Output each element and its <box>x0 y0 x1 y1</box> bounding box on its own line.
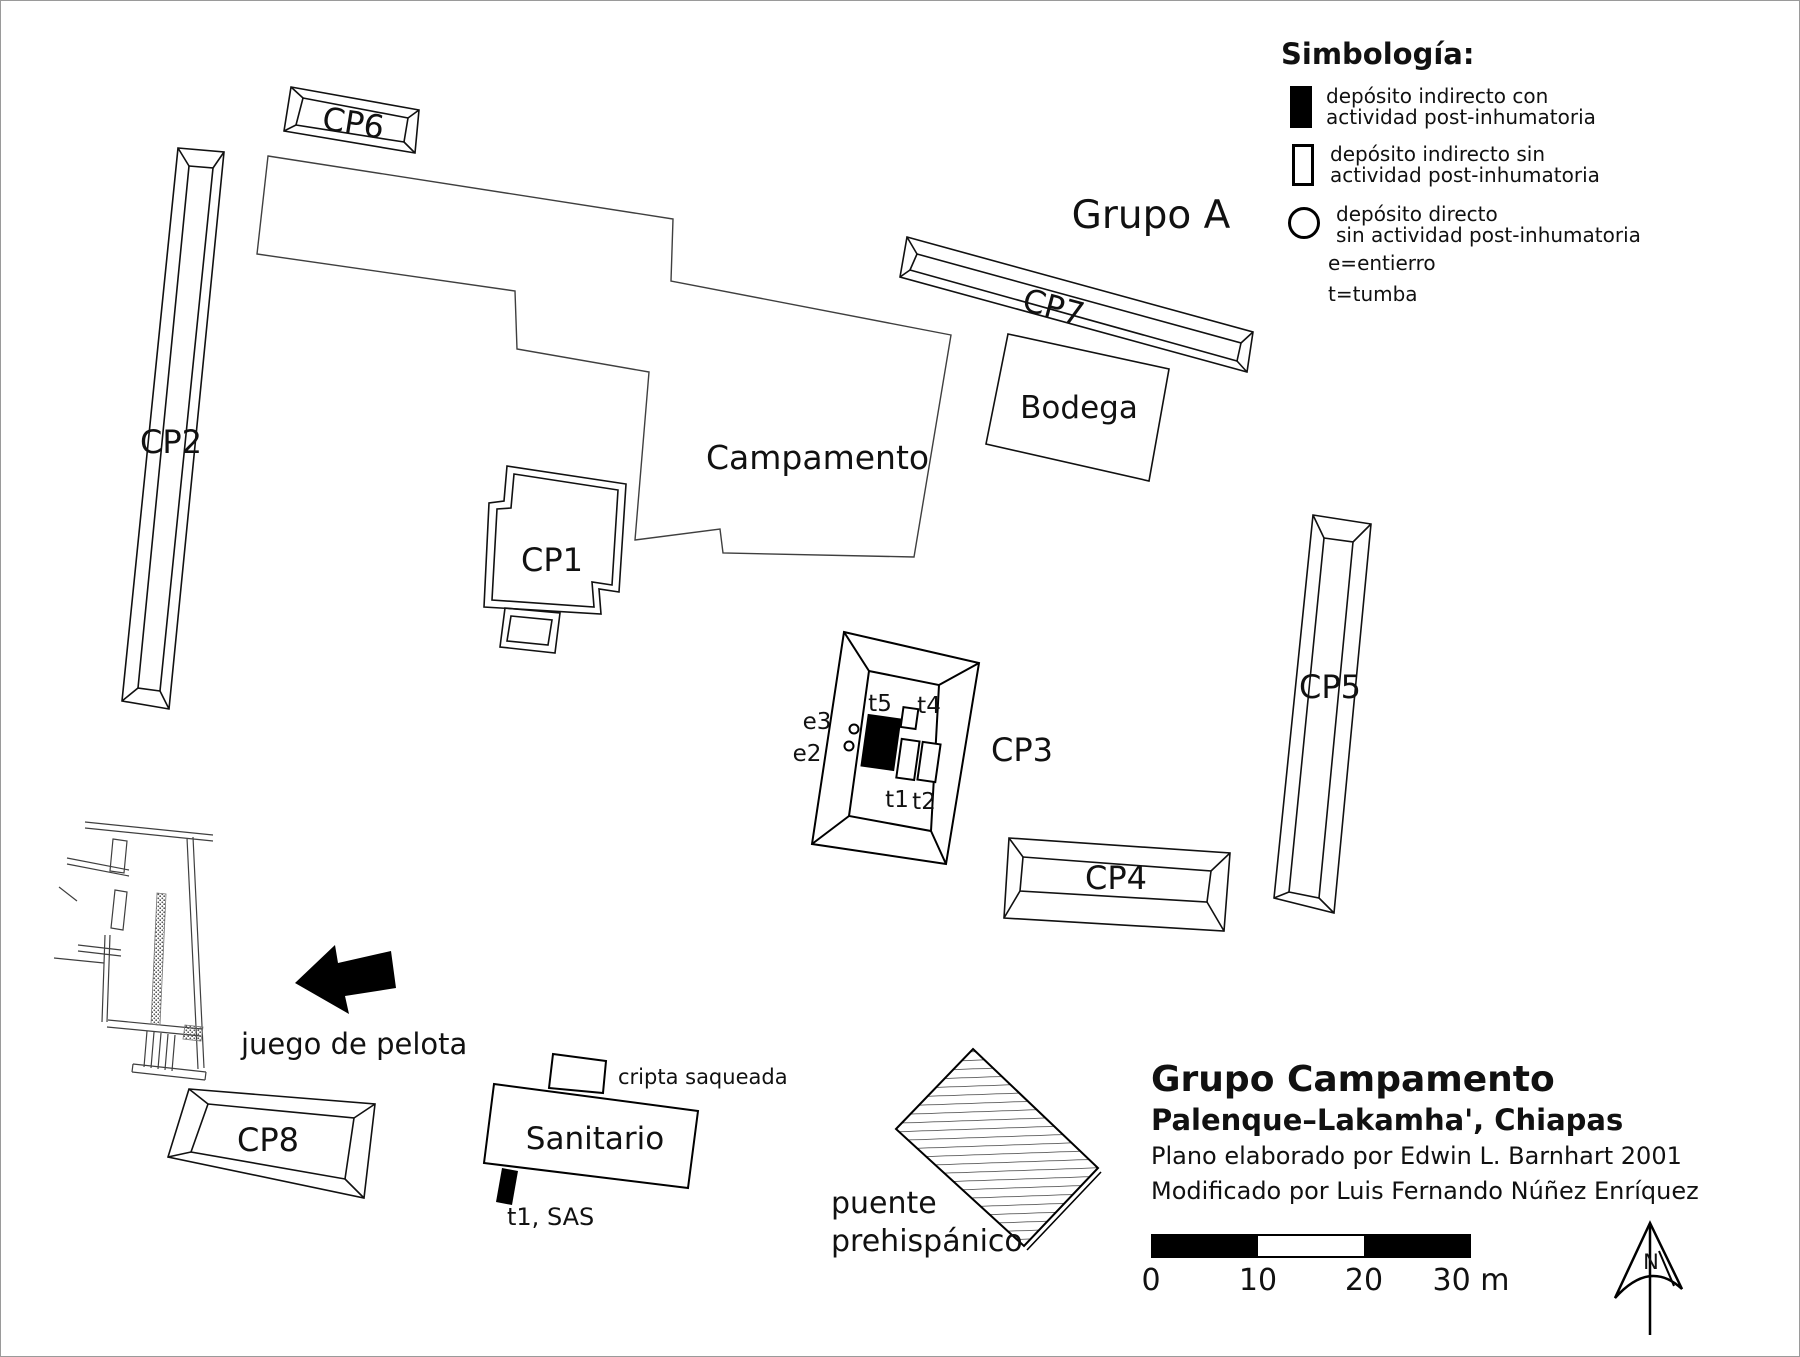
burial-e2-marker <box>845 742 854 751</box>
cp7-label: CP7 <box>1019 281 1089 334</box>
map-credit-2: Modificado por Luis Fernando Núñez Enríq… <box>1151 1177 1699 1205</box>
legend-entierro: e=entierro <box>1328 251 1436 275</box>
bodega-label: Bodega <box>1020 390 1138 426</box>
filled-rect-icon <box>1290 86 1312 128</box>
cp4-label: CP4 <box>1085 859 1147 897</box>
legend-tumba: t=tumba <box>1328 282 1418 306</box>
scale-bar <box>1151 1234 1471 1258</box>
scale-bar-segment <box>1153 1236 1258 1256</box>
legend-item-line: actividad post-inhumatoria <box>1326 107 1596 128</box>
cp8-label: CP8 <box>237 1121 299 1159</box>
map-title: Grupo Campamento <box>1151 1059 1555 1100</box>
puente-label-line2: prehispánico <box>831 1224 1023 1259</box>
e2-label: e2 <box>793 741 822 767</box>
e3-label: e3 <box>803 709 832 735</box>
legend-title: Simbología: <box>1281 37 1474 71</box>
legend-item-deposito-indirecto-sin: depósito indirecto sin actividad post-in… <box>1292 144 1600 186</box>
legend-item-deposito-indirecto-con: depósito indirecto con actividad post-in… <box>1290 86 1596 128</box>
legend-item-line: sin actividad post-inhumatoria <box>1336 225 1641 246</box>
scale-tick-20: 20 <box>1345 1263 1383 1298</box>
cp2-label: CP2 <box>140 423 202 461</box>
map-subtitle: Palenque–Lakamha', Chiapas <box>1151 1103 1623 1137</box>
campamento-label: Campamento <box>706 438 929 477</box>
cripta-label: cripta saqueada <box>618 1065 788 1089</box>
t1-sas-label: t1, SAS <box>507 1203 594 1231</box>
legend-item-line: actividad post-inhumatoria <box>1330 165 1600 186</box>
tomb-t1-marker <box>896 739 919 780</box>
ballcourt-complex-structure <box>54 822 213 1080</box>
grupo-a-label: Grupo A <box>1072 193 1231 238</box>
north-label: N <box>1643 1250 1659 1274</box>
scale-tick-0: 0 <box>1141 1263 1160 1298</box>
scale-bar-segment <box>1258 1236 1363 1256</box>
circle-icon <box>1288 207 1320 239</box>
scale-tick-10: 10 <box>1239 1263 1277 1298</box>
cp5-label: CP5 <box>1299 668 1361 706</box>
juego-de-pelota-label: juego de pelota <box>240 1027 467 1061</box>
campamento-structure <box>257 156 951 557</box>
scale-tick-30m: 30 m <box>1433 1263 1510 1298</box>
scale-bar-segment <box>1364 1236 1469 1256</box>
legend-item-line: depósito directo <box>1336 204 1641 225</box>
cp1-label: CP1 <box>521 541 583 579</box>
cp6-label: CP6 <box>320 99 387 146</box>
tomb-t4-marker <box>901 707 919 729</box>
legend-item-deposito-directo: depósito directo sin actividad post-inhu… <box>1288 204 1641 246</box>
ballcourt-arrow-icon <box>295 945 396 1014</box>
puente-label-line1: puente <box>831 1186 937 1221</box>
t2-label: t2 <box>912 789 936 815</box>
map-canvas: N CP6 CP2 CP7 Grupo A Campamento Bodega … <box>0 0 1800 1357</box>
burial-e3-marker <box>850 725 859 734</box>
map-credit-1: Plano elaborado por Edwin L. Barnhart 20… <box>1151 1142 1682 1170</box>
t5-label: t5 <box>868 691 892 717</box>
north-arrow-icon <box>1615 1223 1682 1335</box>
cp3-label: CP3 <box>991 731 1053 769</box>
t1-label: t1 <box>885 787 909 813</box>
cp5-structure <box>1274 515 1371 913</box>
hollow-rect-icon <box>1292 144 1314 186</box>
tomb-t2-marker <box>917 742 940 782</box>
sanitario-label: Sanitario <box>526 1121 664 1157</box>
t4-label: t4 <box>917 693 941 719</box>
t1-sas-marker <box>496 1168 518 1205</box>
legend-item-line: depósito indirecto con <box>1326 86 1596 107</box>
legend-item-line: depósito indirecto sin <box>1330 144 1600 165</box>
tomb-t5-marker <box>860 714 901 771</box>
